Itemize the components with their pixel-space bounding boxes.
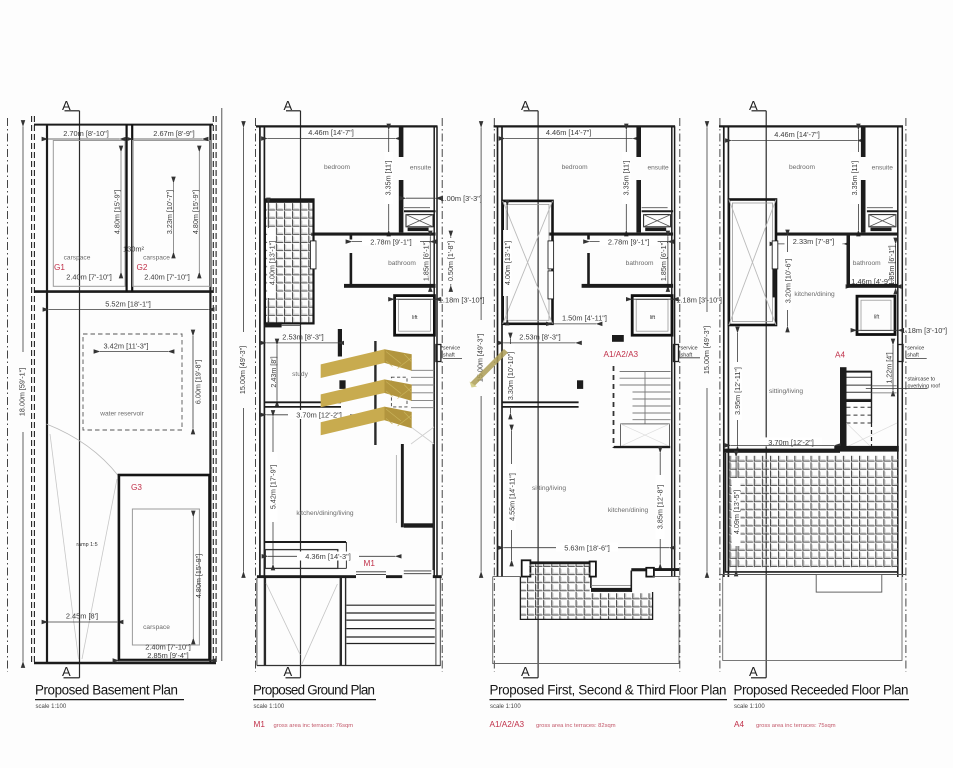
svg-text:ensuite: ensuite (872, 165, 894, 172)
svg-text:gross area inc terraces: 82sqm: gross area inc terraces: 82sqm (536, 723, 616, 729)
svg-text:3.35m [11']: 3.35m [11'] (850, 161, 859, 196)
svg-text:staircase to: staircase to (908, 377, 936, 383)
svg-text:shaft: shaft (907, 353, 919, 359)
svg-text:lift: lift (874, 315, 880, 321)
svg-text:A1/A2/A3: A1/A2/A3 (604, 350, 639, 359)
svg-text:5.52m [18'-1"]: 5.52m [18'-1"] (105, 300, 151, 309)
svg-text:A4: A4 (734, 720, 744, 729)
svg-text:3.42m [11'-3"]: 3.42m [11'-3"] (104, 342, 149, 351)
svg-text:1.85m [6'-1"]: 1.85m [6'-1"] (422, 241, 431, 281)
svg-text:bedroom: bedroom (324, 164, 351, 171)
svg-text:A: A (749, 664, 758, 679)
svg-text:130m²: 130m² (123, 245, 144, 254)
svg-text:ensuite: ensuite (410, 165, 432, 172)
svg-text:1.85m [6'-1"]: 1.85m [6'-1"] (887, 245, 896, 285)
svg-text:4.80m [15'-9"]: 4.80m [15'-9"] (194, 554, 203, 598)
svg-text:4.46m [14'-7"]: 4.46m [14'-7"] (774, 130, 820, 139)
svg-text:3.23m [10'-7"]: 3.23m [10'-7"] (165, 190, 174, 234)
svg-text:Proposed Ground Plan: Proposed Ground Plan (253, 683, 375, 698)
svg-text:3.95m [12'-11"]: 3.95m [12'-11"] (733, 367, 742, 415)
svg-text:5.63m [18'-6"]: 5.63m [18'-6"] (564, 543, 610, 552)
svg-text:sitting/living: sitting/living (769, 388, 803, 395)
svg-text:gross area inc terraces: 75sqm: gross area inc terraces: 75sqm (756, 723, 836, 729)
svg-text:6.00m [19'-8"]: 6.00m [19'-8"] (194, 360, 203, 404)
svg-text:2.40m [7'-10"]: 2.40m [7'-10"] (144, 273, 190, 282)
svg-text:ensuite: ensuite (647, 165, 669, 172)
svg-text:bathroom: bathroom (626, 260, 654, 267)
svg-text:3.35m [11']: 3.35m [11'] (621, 161, 630, 196)
svg-text:kitchen/dining: kitchen/dining (794, 291, 835, 298)
svg-text:18.00m [59'-1"]: 18.00m [59'-1"] (18, 368, 27, 416)
svg-text:service: service (443, 346, 460, 352)
svg-text:study: study (292, 371, 308, 378)
svg-text:kitchen/dining: kitchen/dining (608, 507, 649, 514)
svg-text:2.53m [8'-3"]: 2.53m [8'-3"] (519, 333, 560, 342)
svg-text:bedroom: bedroom (562, 164, 589, 171)
svg-text:Proposed Receeded Floor Plan: Proposed Receeded Floor Plan (734, 683, 909, 698)
svg-text:2.53m [8'-3"]: 2.53m [8'-3"] (282, 333, 323, 342)
svg-text:1.18m [3'-10"]: 1.18m [3'-10"] (676, 295, 722, 304)
svg-text:Proposed Basement Plan: Proposed Basement Plan (35, 683, 178, 698)
svg-text:3.20m [10'-6"]: 3.20m [10'-6"] (783, 259, 792, 303)
svg-text:1.50m [4'-11"]: 1.50m [4'-11"] (562, 314, 607, 323)
svg-text:4.36m [14'-3"]: 4.36m [14'-3"] (305, 552, 351, 561)
svg-text:4.80m [15'-9"]: 4.80m [15'-9"] (113, 190, 122, 234)
svg-text:bedroom: bedroom (789, 164, 816, 171)
svg-text:service: service (681, 346, 698, 352)
svg-text:scale 1:100: scale 1:100 (254, 704, 285, 710)
svg-text:M1: M1 (254, 720, 266, 729)
svg-text:1.85m [6'-1"]: 1.85m [6'-1"] (659, 241, 668, 281)
svg-text:lift: lift (412, 315, 418, 321)
svg-text:1.18m [3'-10"]: 1.18m [3'-10"] (902, 326, 948, 335)
svg-text:2.85m [9'-4"]: 2.85m [9'-4"] (147, 651, 188, 660)
svg-text:4.00m [13'-1"]: 4.00m [13'-1"] (267, 241, 276, 285)
svg-text:bathroom: bathroom (388, 260, 416, 267)
svg-text:carspace: carspace (143, 624, 170, 631)
svg-text:2.43m [8']: 2.43m [8'] (269, 356, 278, 387)
svg-text:4.80m [15'-9"]: 4.80m [15'-9"] (191, 190, 200, 234)
svg-text:1.18m [3'-10"]: 1.18m [3'-10"] (439, 295, 485, 304)
svg-text:2.45m [8']: 2.45m [8'] (66, 612, 98, 621)
svg-text:water reservoir: water reservoir (99, 411, 144, 418)
svg-text:lift: lift (650, 315, 656, 321)
svg-text:G1: G1 (54, 263, 65, 272)
svg-text:15.00m [49'-3"]: 15.00m [49'-3"] (702, 326, 711, 374)
svg-text:service: service (907, 346, 924, 352)
svg-text:A: A (284, 664, 293, 679)
svg-text:A: A (62, 664, 71, 679)
svg-text:shaft: shaft (443, 353, 455, 359)
svg-text:2.33m [7'-8"]: 2.33m [7'-8"] (793, 237, 834, 246)
svg-text:Proposed First, Second & Third: Proposed First, Second & Third Floor Pla… (490, 683, 727, 698)
svg-text:carspace: carspace (64, 255, 91, 262)
svg-text:kitchen/dining/living: kitchen/dining/living (296, 510, 354, 517)
svg-text:A4: A4 (835, 351, 845, 360)
svg-text:sitting/living: sitting/living (532, 485, 566, 492)
svg-text:M1: M1 (364, 559, 376, 568)
svg-text:2.78m [9'-1"]: 2.78m [9'-1"] (370, 237, 411, 246)
svg-text:ramp 1:5: ramp 1:5 (76, 542, 97, 548)
svg-text:3.35m [11']: 3.35m [11'] (384, 161, 393, 196)
svg-text:A1/A2/A3: A1/A2/A3 (490, 720, 525, 729)
svg-text:3.85m [12'-8"]: 3.85m [12'-8"] (656, 485, 665, 529)
svg-text:3.30m [10'-10"]: 3.30m [10'-10"] (506, 352, 515, 400)
svg-text:A: A (521, 664, 530, 679)
svg-text:5.42m [17'-9"]: 5.42m [17'-9"] (269, 465, 278, 509)
svg-text:2.40m [7'-10"]: 2.40m [7'-10"] (66, 273, 112, 282)
svg-text:4.09m [13'-5"]: 4.09m [13'-5"] (732, 490, 741, 534)
svg-text:scale 1:100: scale 1:100 (490, 704, 521, 710)
svg-text:3.70m [12'-2"]: 3.70m [12'-2"] (296, 411, 342, 420)
svg-text:G2: G2 (137, 263, 148, 272)
svg-text:scale 1:100: scale 1:100 (36, 704, 67, 710)
svg-text:4.55m [14'-11"]: 4.55m [14'-11"] (507, 473, 516, 521)
svg-text:2.67m [8'-9"]: 2.67m [8'-9"] (153, 129, 194, 138)
svg-text:1.00m [3'-3"]: 1.00m [3'-3"] (441, 194, 482, 203)
svg-text:bathroom: bathroom (853, 260, 881, 267)
svg-text:scale 1:100: scale 1:100 (734, 704, 765, 710)
svg-text:carspace: carspace (143, 255, 170, 262)
svg-text:0.50m [1'-8"]: 0.50m [1'-8"] (446, 241, 455, 281)
svg-text:15.00m [49'-3"]: 15.00m [49'-3"] (238, 346, 247, 394)
svg-text:4.00m [13'-1"]: 4.00m [13'-1"] (503, 241, 512, 285)
svg-text:4.46m [14'-7"]: 4.46m [14'-7"] (308, 128, 354, 137)
svg-text:gross area inc terraces: 76sqm: gross area inc terraces: 76sqm (274, 723, 354, 729)
svg-text:1.22m [4']: 1.22m [4'] (885, 352, 894, 383)
svg-text:2.78m [9'-1"]: 2.78m [9'-1"] (608, 237, 649, 246)
svg-text:2.70m [8'-10"]: 2.70m [8'-10"] (63, 129, 109, 138)
svg-text:4.46m [14'-7"]: 4.46m [14'-7"] (546, 128, 592, 137)
svg-text:G3: G3 (131, 483, 142, 492)
